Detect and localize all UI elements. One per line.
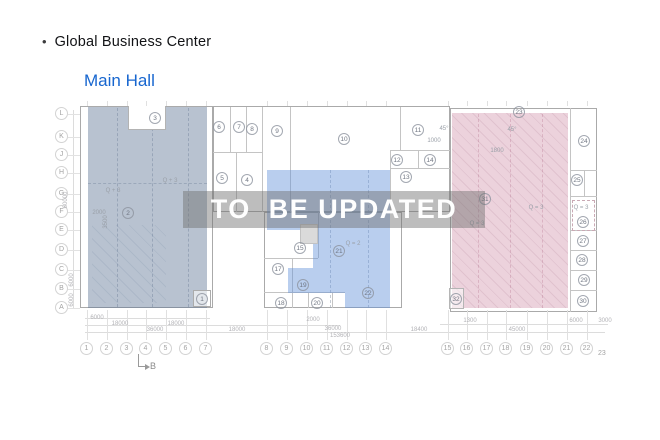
grid-column-label: 22 (580, 342, 593, 355)
dimension-label: 153600 (330, 333, 350, 339)
grid-tick (68, 114, 80, 115)
grid-row-label: K (55, 130, 68, 143)
grid-tick (487, 310, 488, 340)
dimension-label: 6000 (69, 293, 75, 306)
room-number-badge: 20 (311, 297, 323, 309)
grid-column-label: 11 (320, 342, 333, 355)
grid-tick (68, 194, 80, 195)
grid-tick (506, 310, 507, 340)
dimension-label: 36000 (325, 326, 342, 332)
grid-row-label: H (55, 166, 68, 179)
room-number-badge: 29 (578, 274, 590, 286)
grid-tick (547, 101, 548, 106)
wall-line (570, 196, 597, 197)
grid-column-label: 13 (359, 342, 372, 355)
grid-row-label: A (55, 301, 68, 314)
grid-tick (267, 101, 268, 106)
bullet-icon: • (42, 33, 47, 51)
hall-title-link[interactable]: Main Hall (84, 71, 155, 91)
grid-tick (327, 101, 328, 106)
bullet-list-item: • Global Business Center (42, 33, 211, 51)
grid-tick (327, 310, 328, 340)
grid-tick (547, 310, 548, 340)
grid-column-label: 7 (199, 342, 212, 355)
grid-tick (146, 310, 147, 340)
grid-tick (467, 310, 468, 340)
room-number-badge: 23 (513, 106, 525, 118)
grid-row-label: B (55, 282, 68, 295)
grid-column-label: 4 (139, 342, 152, 355)
room-number-badge: 22 (362, 287, 374, 299)
grid-column-label: 20 (540, 342, 553, 355)
dimension-label: 1300 (463, 318, 476, 324)
room-number-badge: 11 (412, 124, 424, 136)
dimension-line (440, 324, 608, 325)
grid-tick (287, 101, 288, 106)
dimension-label: 3000 (598, 318, 611, 324)
wall-line (570, 270, 597, 271)
wall-line (230, 107, 231, 152)
floor-plan: TO BE UPDATED B 123456789101112131415161… (0, 0, 660, 440)
grid-tick (366, 310, 367, 340)
dimension-label: 60000 (63, 192, 69, 209)
wall-line (570, 108, 571, 312)
wall-line (418, 150, 419, 168)
grid-column-label: 19 (520, 342, 533, 355)
room-number-badge: 9 (271, 125, 283, 137)
room-number-badge: 24 (578, 135, 590, 147)
room-number-badge: 32 (450, 293, 462, 305)
room-number-badge: 18 (275, 297, 287, 309)
room-number-badge: 25 (571, 174, 583, 186)
grid-column-label: 9 (280, 342, 293, 355)
page-title: Global Business Center (55, 34, 212, 50)
dimension-label: 18400 (411, 327, 428, 333)
room-number-badge: 21 (333, 245, 345, 257)
grid-tick (68, 230, 80, 231)
grid-tick (68, 289, 80, 290)
grid-row-label: L (55, 107, 68, 120)
wall-line (332, 292, 333, 308)
grid-column-label: 3 (120, 342, 133, 355)
room-number-badge: 14 (424, 154, 436, 166)
grid-tick (87, 310, 88, 340)
grid-tick (206, 310, 207, 340)
grid-row-label: E (55, 223, 68, 236)
grid-tick (467, 101, 468, 106)
hatch-pattern (92, 225, 166, 303)
grid-tick (68, 155, 80, 156)
room-number-badge: 30 (577, 295, 589, 307)
grid-tick (448, 310, 449, 340)
dimension-label: 36000 (147, 327, 164, 333)
room-number-badge: 13 (400, 171, 412, 183)
wall-line (390, 150, 450, 151)
grid-row-label: J (55, 148, 68, 161)
grid-tick (307, 101, 308, 106)
room-number-badge: 27 (577, 235, 589, 247)
wall-line (308, 292, 309, 308)
grid-tick (267, 310, 268, 340)
zone-label: 45° (507, 127, 516, 133)
grid-tick (87, 101, 88, 106)
grid-tick (386, 101, 387, 106)
grid-row-label: D (55, 243, 68, 256)
grid-column-label: 6 (179, 342, 192, 355)
dimension-label: 6000 (90, 315, 103, 321)
grid-tick (68, 270, 80, 271)
grid-tick (527, 101, 528, 106)
grid-tick (186, 310, 187, 340)
room-number-badge: 19 (297, 279, 309, 291)
dimension-label: 18000 (168, 321, 185, 327)
zone-label: Q = 2 (346, 241, 361, 247)
grid-tick (307, 310, 308, 340)
dimension-label: 18000 (112, 321, 129, 327)
grid-tick (567, 101, 568, 106)
grid-tick (347, 101, 348, 106)
room-number-badge: 4 (241, 174, 253, 186)
grid-tick (506, 101, 507, 106)
grid-column-label: 15 (441, 342, 454, 355)
grid-tick (487, 101, 488, 106)
dimension-label: 2000 (306, 317, 319, 323)
grid-row-label: C (55, 263, 68, 276)
room-number-badge: 1 (196, 293, 208, 305)
grid-column-label: 5 (159, 342, 172, 355)
zone-label: Q + 3 (163, 178, 178, 184)
zone-label: Q = 3 (529, 205, 544, 211)
zone-label: Q + 3 (106, 188, 121, 194)
grid-tick (587, 101, 588, 106)
watermark: TO BE UPDATED (183, 191, 485, 228)
grid-tick (166, 101, 167, 106)
grid-tick (448, 101, 449, 106)
grid-column-label: 10 (300, 342, 313, 355)
grid-tick (386, 310, 387, 340)
grid-tick (68, 250, 80, 251)
grid-column-label: 16 (460, 342, 473, 355)
dimension-label: 6000 (569, 318, 582, 324)
grid-column-label: 1 (80, 342, 93, 355)
room-number-badge: 5 (216, 172, 228, 184)
room-number-badge: 7 (233, 121, 245, 133)
room-number-badge: 12 (391, 154, 403, 166)
zone-label: Q = 3 (574, 205, 589, 211)
grid-tick (527, 310, 528, 340)
grid-column-label: 12 (340, 342, 353, 355)
grid-column-label: 2 (100, 342, 113, 355)
page: • Global Business Center Main Hall TO BE… (0, 0, 660, 440)
room-number-badge: 15 (294, 242, 306, 254)
room-number-badge: 8 (246, 123, 258, 135)
zone-label: 45° (439, 126, 448, 132)
room-number-badge: 28 (576, 254, 588, 266)
grid-column-label: 8 (260, 342, 273, 355)
zone-label: 3500 (103, 215, 109, 228)
grid-column-label: 21 (560, 342, 573, 355)
grid-tick (287, 310, 288, 340)
grid-tick (68, 212, 80, 213)
room-number-badge: 26 (577, 216, 589, 228)
grid-tick (186, 101, 187, 106)
wall-line (584, 170, 585, 196)
zone-label: 1800 (490, 148, 503, 154)
grid-column-label: 18 (499, 342, 512, 355)
grid-tick (68, 137, 80, 138)
grid-tick (68, 173, 80, 174)
wall-line (390, 168, 450, 169)
room-number-badge: 3 (149, 112, 161, 124)
grid-tick (587, 310, 588, 340)
grid-tick (107, 310, 108, 340)
dimension-label: 45000 (509, 327, 526, 333)
room-number-badge: 2 (122, 207, 134, 219)
grid-tick (107, 101, 108, 106)
room-number-badge: 10 (338, 133, 350, 145)
grid-tick (68, 308, 80, 309)
room-number-badge: 6 (213, 121, 225, 133)
grid-tick (206, 101, 207, 106)
dimension-label: 18000 (229, 327, 246, 333)
section-mark-label: B (150, 361, 156, 371)
dimension-label: 6000 (69, 273, 75, 286)
grid-column-label: 23 (598, 350, 606, 357)
zone-label: 1000 (427, 138, 440, 144)
wall-line (264, 258, 318, 259)
wall-line (570, 290, 597, 291)
room-number-badge: 17 (272, 263, 284, 275)
wall-line (213, 152, 263, 153)
grid-tick (567, 310, 568, 340)
grid-column-label: 17 (480, 342, 493, 355)
grid-tick (366, 101, 367, 106)
grid-column-label: 14 (379, 342, 392, 355)
watermark-text: TO BE UPDATED (211, 194, 458, 225)
wall-line (400, 107, 401, 150)
dimension-line (85, 318, 210, 319)
wall-line (570, 250, 597, 251)
